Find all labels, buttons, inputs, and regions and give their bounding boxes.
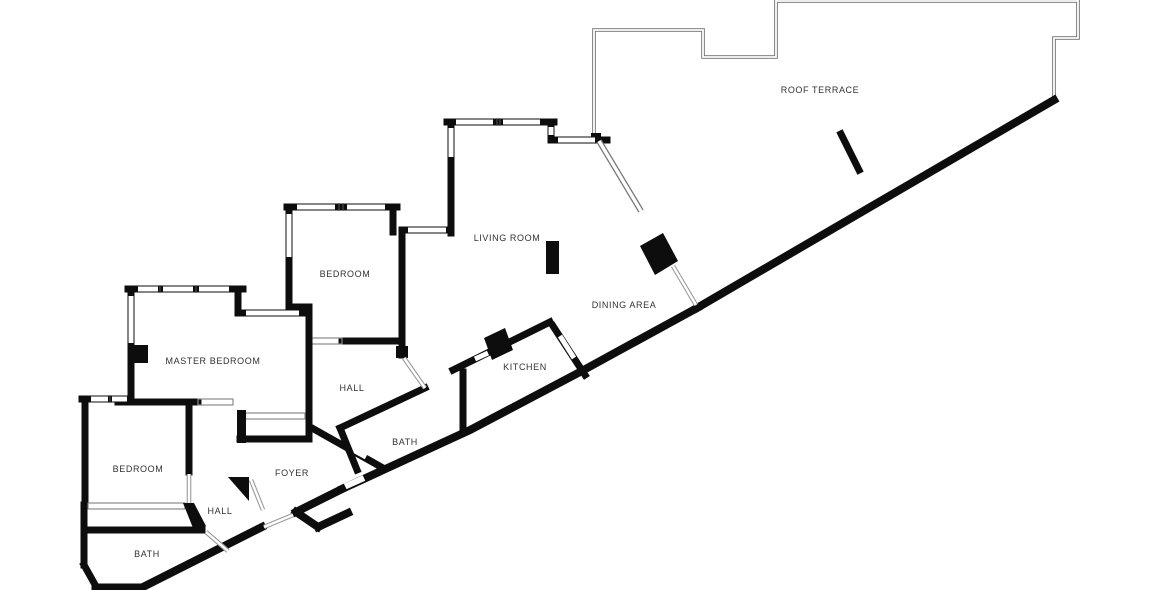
room-label-hall-upper: HALL (340, 383, 365, 393)
floor-plan-svg: ROOF TERRACE LIVING ROOM BEDROOM MASTER … (0, 0, 1165, 590)
room-label-master-bedroom: MASTER BEDROOM (166, 356, 261, 366)
room-label-foyer: FOYER (275, 468, 309, 478)
room-label-bedroom-mid: BEDROOM (320, 269, 371, 279)
room-label-living-room: LIVING ROOM (474, 233, 541, 243)
living-room-column (546, 241, 559, 274)
room-label-bath-mid: BATH (392, 437, 418, 447)
room-label-bath-lower: BATH (134, 549, 160, 559)
room-label-roof-terrace: ROOF TERRACE (781, 85, 860, 95)
floor-plan-background (0, 0, 1165, 590)
room-label-kitchen: KITCHEN (503, 362, 547, 372)
floor-plan-page: ROOF TERRACE LIVING ROOM BEDROOM MASTER … (0, 0, 1165, 590)
room-label-bedroom-lower: BEDROOM (113, 464, 164, 474)
room-label-hall-lower: HALL (208, 506, 233, 516)
room-label-dining-area: DINING AREA (592, 300, 657, 310)
